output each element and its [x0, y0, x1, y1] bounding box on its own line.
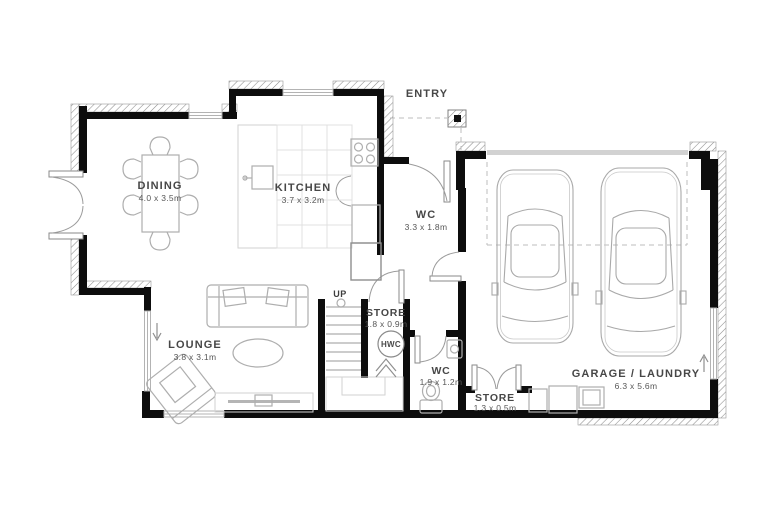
wc-hall-label: WC: [416, 209, 437, 221]
island-sink: [243, 166, 273, 189]
wc-door: [415, 336, 446, 363]
stair-treads: [326, 307, 361, 370]
window-arrow-up-icon: [700, 355, 708, 372]
kitchen-window: [283, 90, 333, 96]
kitchen-label: KITCHEN: [275, 182, 332, 194]
lounge-label: LOUNGE: [168, 339, 222, 351]
dining-window: [189, 113, 222, 119]
lounge-area: LOUNGE 3.8 x 3.1m: [145, 285, 313, 426]
coffee-table: [233, 339, 283, 367]
store-door: [369, 270, 404, 303]
porch-post-core: [454, 115, 461, 122]
store-area: STORE 1.8 x 0.9m HWC: [365, 307, 408, 357]
closet-double-doors: [472, 365, 521, 390]
dining-chair: [123, 159, 141, 179]
dining-chair: [150, 137, 170, 155]
garage-window: [711, 308, 717, 379]
wc-small-label: WC: [431, 365, 450, 377]
garage-door-dashed-outline: [487, 162, 687, 245]
stair-landing-inner: [342, 377, 385, 395]
fridge: [352, 205, 380, 243]
hwc-label: HWC: [381, 340, 401, 349]
pantry-bifold-door: [336, 176, 351, 206]
stair-newel: [337, 299, 345, 307]
store-label: STORE: [366, 307, 406, 319]
garage-dims: 6.3 x 5.6m: [615, 381, 658, 391]
french-doors: [49, 171, 83, 239]
dining-chair: [180, 159, 198, 179]
kitchen-dims: 3.7 x 3.2m: [282, 195, 325, 205]
pantry-cupboard: [351, 243, 381, 280]
dining-area: DINING 4.0 x 3.5m: [123, 137, 198, 250]
kitchen-area: KITCHEN 3.7 x 3.2m: [238, 125, 381, 280]
store-small-dims: 1.3 x 0.5m: [474, 403, 517, 413]
dining-chair: [150, 232, 170, 250]
garage-label: GARAGE / LAUNDRY: [572, 368, 700, 380]
store-small-area: STORE 1.3 x 0.5m: [474, 392, 517, 413]
window-arrow-down-icon: [153, 323, 161, 340]
car-right: [596, 168, 686, 356]
dining-chair: [180, 195, 198, 215]
stair-landing: [326, 377, 403, 411]
dining-dims: 4.0 x 3.5m: [139, 193, 182, 203]
lounge-dims: 3.8 x 3.1m: [174, 352, 217, 362]
entry-door: [409, 161, 450, 202]
entry-area: ENTRY: [390, 88, 466, 150]
tv-unit: [215, 393, 313, 412]
car-left: [492, 170, 578, 343]
up-label: UP: [333, 289, 347, 299]
dining-label: DINING: [137, 180, 182, 192]
wc-small-dims: 1.9 x 1.2m: [420, 377, 463, 387]
laundry-appliances: [529, 386, 604, 413]
wc-hall-area: WC 3.3 x 1.8m: [405, 209, 448, 232]
store-dims: 1.8 x 0.9m: [365, 319, 408, 329]
wc-hall-dims: 3.3 x 1.8m: [405, 222, 448, 232]
floorplan-page: ENTRY DINING 4.0 x 3.5m K: [0, 0, 768, 512]
floorplan-svg: ENTRY DINING 4.0 x 3.5m K: [0, 0, 768, 512]
hall-garage-door: [430, 252, 461, 281]
garage-door-threshold: [487, 150, 688, 155]
entry-label: ENTRY: [406, 88, 448, 100]
stair-up-arrow-icon: [376, 359, 396, 377]
sofa: [207, 285, 308, 327]
stove: [351, 139, 378, 166]
